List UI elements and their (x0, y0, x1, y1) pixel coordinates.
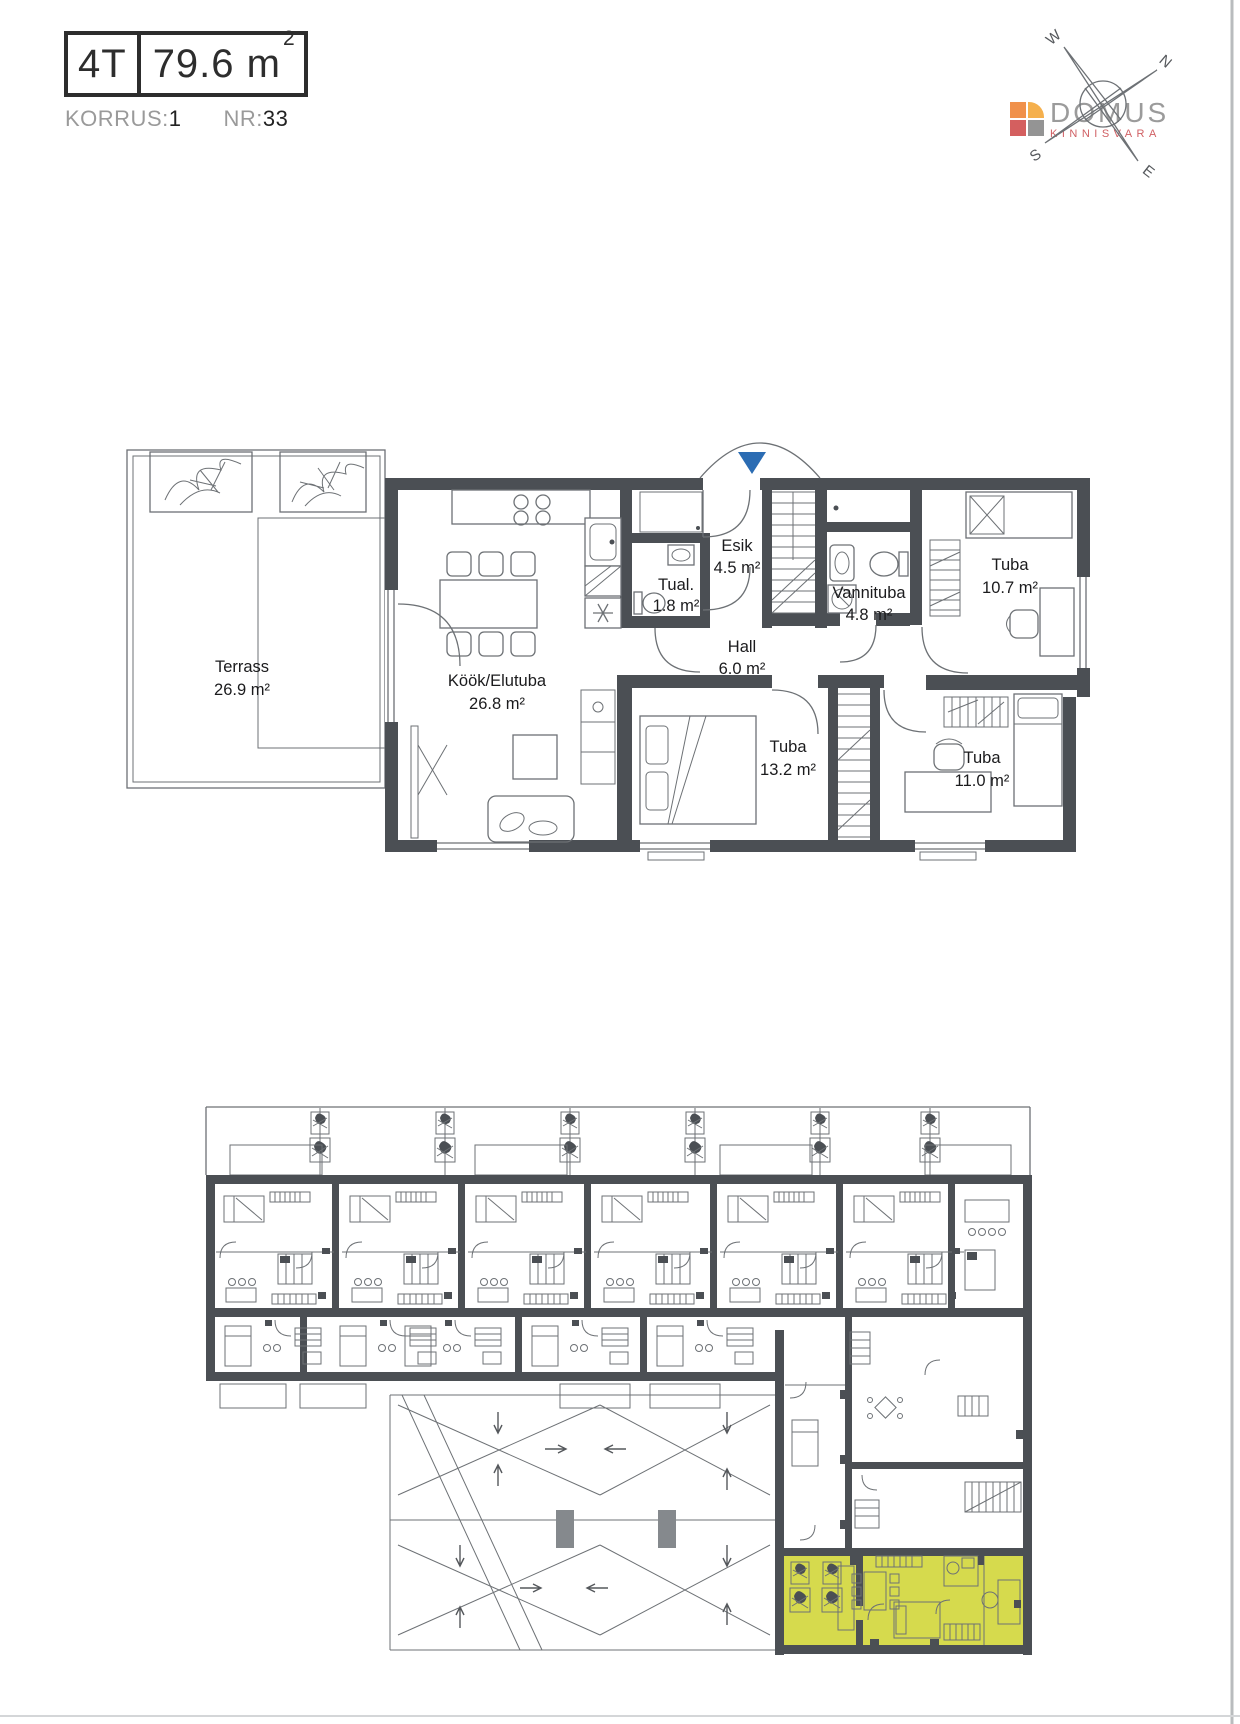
overview-right-end-unit (965, 1200, 1009, 1290)
bed (1014, 694, 1062, 806)
bedroom-13-2: Tuba 13.2 m² (640, 716, 816, 824)
bedroom-11-0: Tuba 11.0 m² (905, 694, 1062, 812)
shelf-cabinet (581, 690, 615, 784)
kitchen-living-room: Köök/Elutuba 26.8 m² (411, 490, 621, 842)
pillar (556, 1510, 574, 1548)
compass-east: E (1139, 162, 1157, 182)
planter-box (280, 452, 366, 512)
room-area-vannituba: 4.8 m² (846, 606, 893, 624)
balcony-dividers (320, 1108, 930, 1175)
main-floor-plan: Terrass 26.9 m² (127, 443, 1090, 860)
tv-unit (411, 726, 447, 838)
bed (966, 492, 1072, 538)
highlighted-apartment (784, 1556, 1023, 1645)
room-area-esik: 4.5 m² (714, 559, 761, 577)
entrance-arrow-icon (738, 452, 766, 474)
kitchen-sink-icon (585, 518, 621, 566)
stairwell (965, 1482, 1021, 1512)
room-label-tualett: Tual. (658, 576, 694, 594)
room-label-esik: Esik (721, 537, 753, 555)
room-area-terrass: 26.9 m² (214, 681, 270, 699)
room-area-tuba2: 13.2 m² (760, 761, 816, 779)
entry-closet (640, 492, 702, 532)
wardrobe (944, 697, 1008, 727)
sofa (488, 796, 574, 842)
building-overview-plan (206, 1107, 1032, 1655)
courtyard (390, 1395, 775, 1650)
room-area-kook-elutuba: 26.8 m² (469, 695, 525, 713)
dining-set (868, 1397, 903, 1419)
pillar (658, 1510, 676, 1548)
double-bed (640, 716, 756, 824)
bathroom-sink-icon (830, 545, 854, 581)
terrace: Terrass 26.9 m² (127, 450, 385, 788)
room-label-vannituba: Vannituba (832, 584, 906, 602)
wardrobe (930, 540, 960, 616)
bed (792, 1420, 818, 1466)
room-area-tualett: 1.8 m² (653, 597, 700, 615)
room-label-tuba3: Tuba (964, 749, 1002, 767)
room-label-kook-elutuba: Köök/Elutuba (448, 672, 547, 690)
compass-north: N (1156, 52, 1175, 72)
compass-west: W (1043, 26, 1065, 49)
room-area-tuba3: 11.0 m² (955, 772, 1010, 790)
staircase (772, 492, 815, 613)
floor-plan-page: 4T 79.6 m 2 KORRUS:1NR:33 DOMUS KINNISVA… (0, 0, 1240, 1724)
balcony-band (206, 1107, 1030, 1175)
coffee-table (513, 735, 557, 779)
bedroom-10-7: Tuba 10.7 m² (930, 492, 1074, 656)
desk-chair (1007, 610, 1039, 638)
shaft-ladder (838, 694, 870, 837)
right-wing (785, 1332, 1023, 1555)
fridge-icon (585, 598, 621, 628)
toilet-room: Tual. 1.8 m² (634, 545, 700, 615)
desk (1040, 588, 1074, 656)
plan-drawing: W N S E Terrass 26.9 m² (0, 0, 1240, 1724)
dining-table (440, 552, 537, 656)
compass-rose: W N S E (1027, 26, 1175, 181)
room-area-tuba1: 10.7 m² (982, 579, 1038, 597)
planter-box (150, 452, 252, 512)
room-label-terrass: Terrass (215, 658, 269, 676)
toilet-icon (870, 552, 908, 576)
compass-south: S (1027, 146, 1045, 166)
desk-chair (934, 739, 964, 770)
room-label-hall: Hall (728, 638, 756, 656)
room-area-hall: 6.0 m² (719, 660, 766, 678)
room-label-tuba2: Tuba (770, 738, 808, 756)
small-sink-icon (668, 545, 694, 565)
room-label-tuba1: Tuba (992, 556, 1030, 574)
